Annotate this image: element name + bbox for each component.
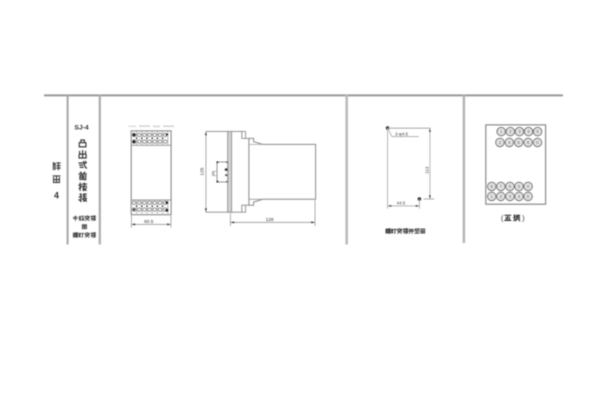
- svg-text:125: 125: [200, 167, 206, 175]
- svg-text:35: 35: [212, 172, 216, 176]
- svg-text:SJ-4: SJ-4: [74, 125, 89, 132]
- svg-text:113: 113: [424, 166, 429, 174]
- svg-text:128: 128: [266, 217, 274, 223]
- svg-text:60.5: 60.5: [144, 219, 154, 225]
- svg-text:4: 4: [54, 190, 59, 200]
- svg-text:2-φ4.5: 2-φ4.5: [395, 132, 408, 137]
- svg-text:44.5: 44.5: [397, 200, 406, 205]
